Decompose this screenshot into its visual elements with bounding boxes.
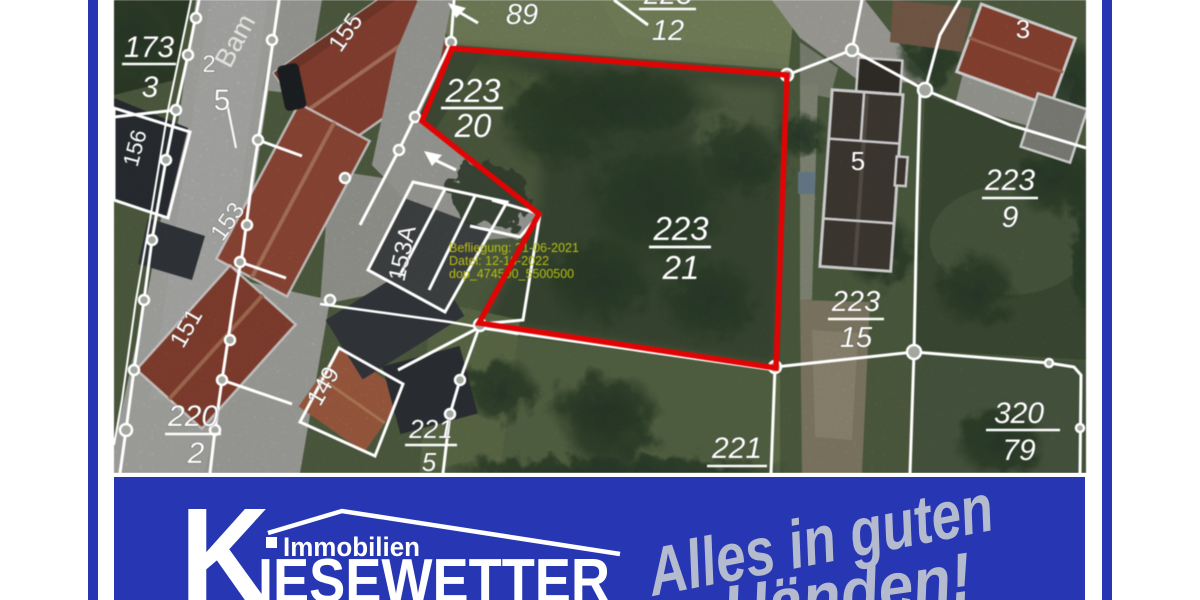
svg-text:79: 79 — [1002, 434, 1036, 467]
svg-text:320: 320 — [994, 397, 1044, 430]
svg-text:223: 223 — [444, 72, 501, 109]
svg-text:Befliegung: 21-06-2021: Befliegung: 21-06-2021 — [449, 241, 579, 255]
svg-text:5: 5 — [851, 146, 865, 176]
svg-text:223: 223 — [984, 164, 1035, 197]
svg-text:Datei: 12-10-2022: Datei: 12-10-2022 — [449, 254, 549, 268]
svg-text:223: 223 — [831, 286, 880, 318]
svg-text:3: 3 — [1016, 14, 1030, 44]
svg-text:IESEWETTER: IESEWETTER — [258, 547, 610, 600]
svg-text:223: 223 — [652, 210, 709, 247]
svg-text:221: 221 — [408, 414, 452, 444]
svg-text:K: K — [180, 480, 270, 600]
svg-text:21: 21 — [662, 249, 700, 286]
svg-text:5: 5 — [214, 84, 231, 117]
svg-text:2: 2 — [187, 437, 205, 470]
svg-text:9: 9 — [1002, 201, 1019, 234]
svg-text:12: 12 — [652, 15, 684, 47]
svg-text:89: 89 — [506, 0, 538, 31]
svg-text:220: 220 — [167, 400, 218, 433]
svg-text:173: 173 — [124, 31, 174, 64]
svg-text:15: 15 — [840, 322, 873, 354]
svg-text:3: 3 — [142, 71, 159, 104]
svg-text:221: 221 — [711, 432, 762, 465]
svg-text:5: 5 — [422, 447, 437, 473]
svg-text:20: 20 — [454, 107, 492, 144]
